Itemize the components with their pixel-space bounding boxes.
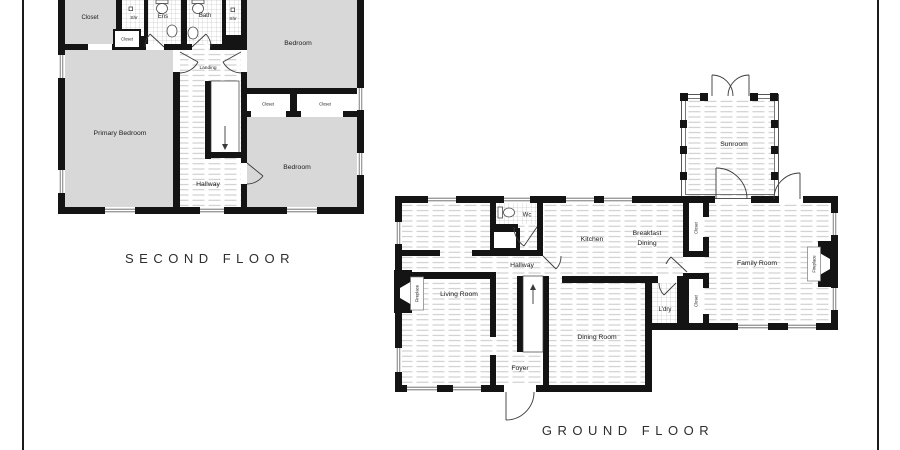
- room-label-closet-small: Closet: [121, 37, 134, 42]
- floor-plan-page: Closet Shr Ens Bath Shr Closet Bedroom L…: [0, 0, 900, 450]
- room-label-dining-room: Dining Room: [577, 334, 617, 341]
- shower-head-icon: [129, 7, 133, 11]
- fireplace-right: Fireplace: [808, 241, 838, 287]
- room-label-breakfast-line2: Dining: [637, 240, 656, 247]
- room-label-family-room: Family Room: [737, 260, 777, 267]
- room-label-bath: Bath: [199, 13, 211, 19]
- room-label-kitchen: Kitchen: [581, 236, 604, 243]
- room-label-closet-left: Closet: [262, 102, 275, 107]
- fireplace-left-label: Fireplace: [415, 284, 420, 302]
- fireplace-right-label: Fireplace: [812, 255, 817, 273]
- ground-floor-fixtures: [498, 207, 515, 218]
- room-label-closet-right: Closet: [319, 102, 332, 107]
- room-label-laundry: L'dry: [659, 307, 672, 313]
- second-floor-plan: Closet Shr Ens Bath Shr Closet Bedroom L…: [58, 0, 364, 214]
- room-label-bedroom-top: Bedroom: [284, 40, 312, 47]
- room-label-living-room: Living Room: [440, 291, 478, 298]
- room-label-shower-left: Shr: [130, 15, 138, 21]
- sink: [188, 27, 198, 39]
- toilet-bowl: [157, 4, 168, 14]
- toilet-bowl: [193, 4, 204, 14]
- room-label-landing: Landing: [199, 65, 216, 71]
- room-label-hallway-second: Hallway: [196, 181, 220, 188]
- room-label-shower-right: Shr: [229, 16, 237, 22]
- room-label-hallway-ground: Hallway: [510, 262, 534, 269]
- room-label-closet-top: Closet: [694, 221, 699, 234]
- room-label-breakfast-line1: Breakfast: [633, 230, 662, 237]
- room-label-primary-bedroom: Primary Bedroom: [94, 130, 147, 137]
- floor-plan-drawing: Closet Shr Ens Bath Shr Closet Bedroom L…: [0, 0, 900, 450]
- room-label-foyer: Foyer: [511, 365, 529, 372]
- toilet-tank: [156, 0, 168, 4]
- toilet-bowl: [504, 208, 515, 217]
- room-label-closet-top-left: Closet: [81, 15, 98, 21]
- sink: [167, 25, 177, 37]
- shower-head-icon: [231, 8, 235, 12]
- room-label-bedroom-bottom: Bedroom: [283, 164, 311, 171]
- toilet-tank: [192, 0, 204, 4]
- room-label-ensuite: Ens: [158, 14, 168, 20]
- ground-floor-title: GROUND FLOOR: [478, 423, 778, 438]
- room-label-wc: Wc: [523, 213, 532, 219]
- ground-floor-fills: [402, 99, 831, 385]
- room-label-sunroom: Sunroom: [720, 141, 748, 148]
- toilet-tank: [498, 207, 503, 218]
- room-label-closet-bottom: Closet: [694, 294, 699, 307]
- second-floor-title: SECOND FLOOR: [60, 251, 360, 266]
- ground-floor-stairs: [523, 276, 543, 352]
- ground-floor-plan: Fireplace Fireplace: [394, 75, 838, 420]
